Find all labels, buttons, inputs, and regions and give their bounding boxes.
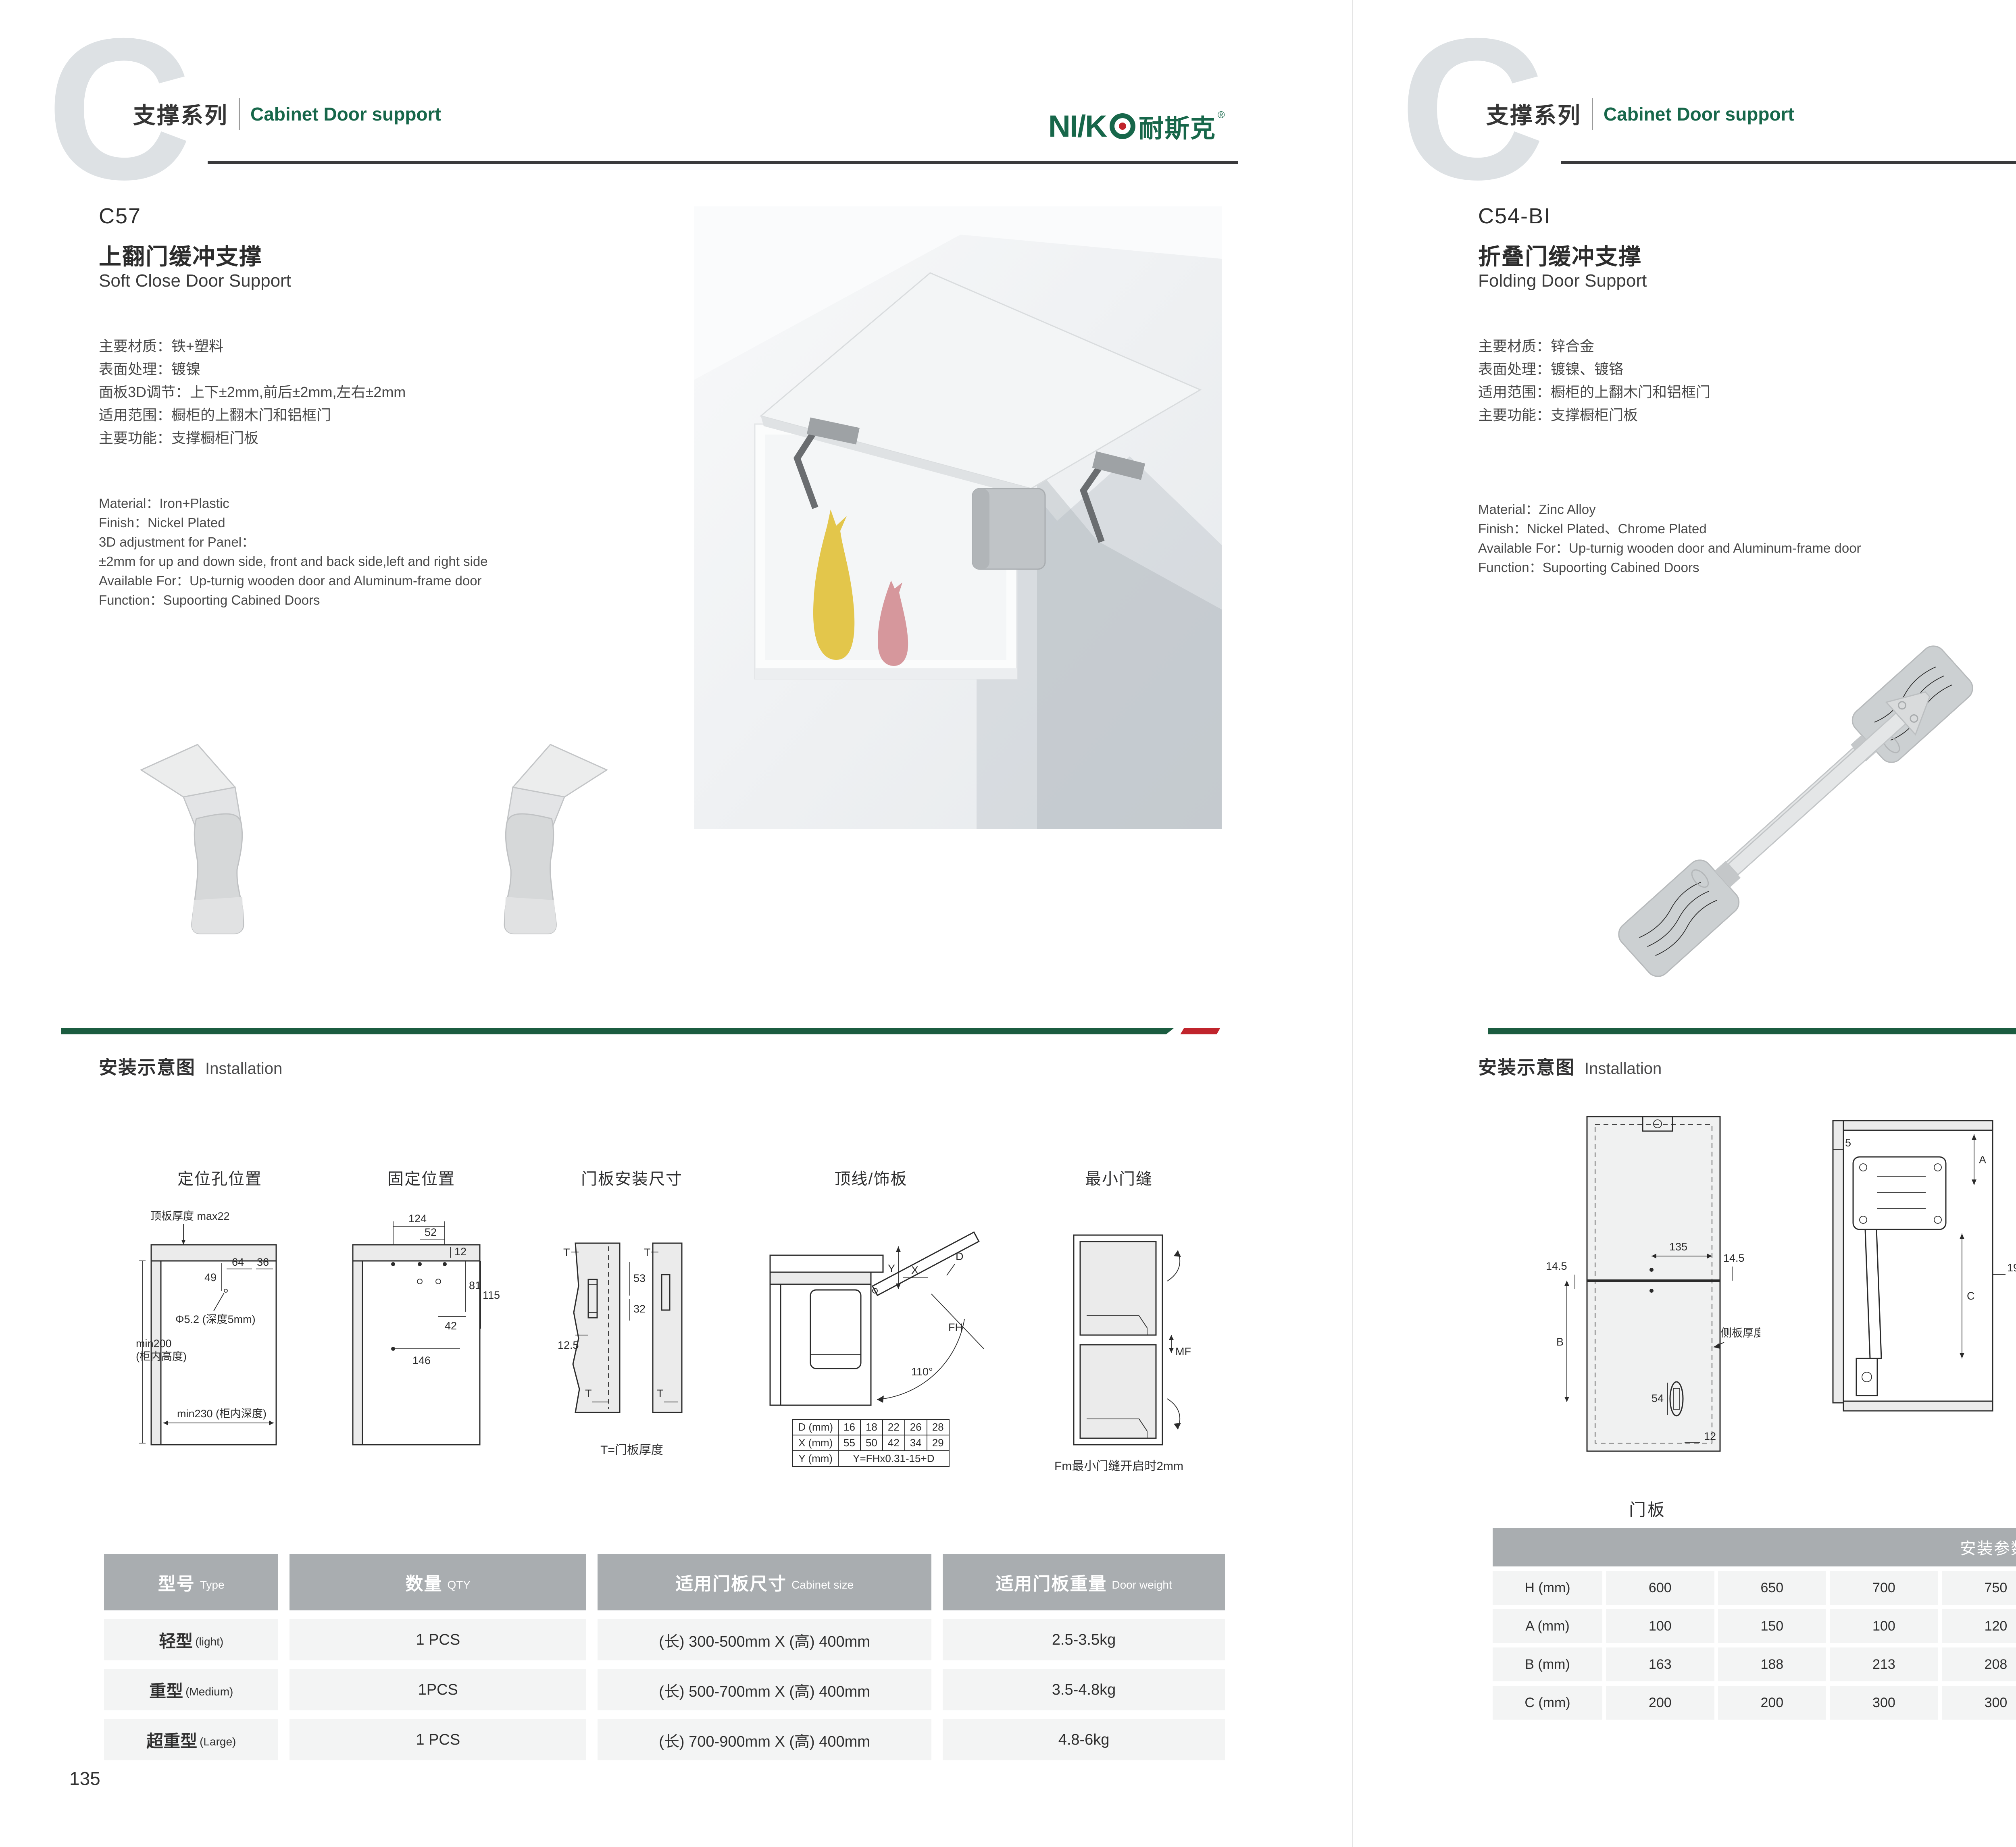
product-title-en: Folding Door Support — [1478, 271, 1647, 291]
svg-text:D: D — [956, 1250, 964, 1263]
series-title-cn: 支撑系列 — [1486, 98, 1581, 130]
diagram-crown-molding: 顶线/饰板 110° Y X D — [738, 1166, 1004, 1467]
svg-text:81: 81 — [469, 1279, 481, 1292]
series-title-en: Cabinet Door support — [250, 103, 441, 125]
header-series: 支撑系列 Cabinet Door support — [133, 98, 441, 130]
svg-text:B: B — [1556, 1336, 1564, 1348]
logo-dot-icon — [1119, 123, 1126, 130]
page-number: 135 — [69, 1768, 100, 1789]
svg-text:T: T — [657, 1387, 664, 1400]
product-specs-cn: 主要材质：锌合金 表面处理：镀镍、镀铬 适用范围：橱柜的上翻木门和铝框门 主要功… — [1478, 335, 1710, 426]
header-door-weight: 适用门板重量Door weight — [943, 1554, 1225, 1610]
spec-line: 表面处理：镀镍、镀铬 — [1478, 358, 1710, 381]
installation-heading-en: Installation — [205, 1060, 282, 1078]
section-bar-green — [61, 1028, 1174, 1034]
header-qty: 数量QTY — [289, 1554, 586, 1610]
svg-text:5: 5 — [1845, 1137, 1851, 1149]
diagram-caption: 门板 — [1629, 1496, 1666, 1521]
svg-text:12.5: 12.5 — [558, 1339, 579, 1351]
svg-text:19: 19 — [2007, 1262, 2016, 1274]
spec-line: Available For：Up-turnig wooden door and … — [99, 571, 488, 591]
spec-line: 主要功能：支撑橱柜门板 — [99, 426, 406, 449]
svg-text:124: 124 — [408, 1213, 427, 1225]
svg-text:Y: Y — [888, 1263, 895, 1275]
svg-text:36: 36 — [257, 1256, 269, 1268]
spec-line: 3D adjustment for Panel： — [99, 532, 488, 552]
diagram-fixing-position: 固定位置 124 52 12 81 115 42 — [339, 1166, 504, 1457]
series-title-en: Cabinet Door support — [1604, 103, 1794, 125]
spec-line: Finish：Nickel Plated、Chrome Plated — [1478, 519, 1861, 539]
cabinet-shelf — [755, 668, 1017, 679]
installation-heading-cn: 安装示意图 — [99, 1053, 196, 1079]
svg-text:MF: MF — [1175, 1346, 1191, 1358]
spec-line: 表面处理：镀镍 — [99, 358, 406, 381]
catalog-spread: C 支撑系列 Cabinet Door support NI/K 耐斯克 ® C… — [0, 0, 2016, 1847]
spec-table: 型号Type 数量QTY 适用门板尺寸Cabinet size 适用门板重量Do… — [104, 1554, 1225, 1760]
diagram-title: 定位孔位置 — [177, 1166, 262, 1189]
installation-heading-en: Installation — [1585, 1060, 1662, 1078]
logo-latin: NI/K — [1048, 109, 1106, 144]
svg-text:FH: FH — [948, 1321, 963, 1333]
diagram-door-mounting-size: 门板安装尺寸 T 53 32 12.5 T T T — [545, 1166, 719, 1458]
product-code: C57 — [99, 204, 141, 229]
reference-row-H: H (mm) 600 650 700 750 800 850 900 950 1… — [1493, 1571, 2016, 1605]
folding-support-unit-b — [1614, 670, 1949, 981]
spec-line: 面板3D调节：上下±2mm,前后±2mm,左右±2mm — [99, 381, 406, 404]
diagram-title: 顶线/饰板 — [834, 1166, 907, 1189]
spec-line: Function：Supoorting Cabined Doors — [99, 591, 488, 610]
svg-text:T: T — [563, 1246, 570, 1258]
crown-dimension-table: D (mm)1618222628 X (mm)5550423429 Y (mm)… — [792, 1419, 949, 1467]
spec-line: Material：Zinc Alloy — [1478, 500, 1861, 519]
header-rule — [1561, 161, 2016, 164]
svg-text:T: T — [585, 1387, 592, 1400]
diagram-caption: T=门板厚度 — [600, 1440, 663, 1458]
svg-text:135: 135 — [1669, 1241, 1687, 1253]
diagram-cabinet-section-a: 5 A C 19 — [1805, 1100, 2016, 1463]
diagram-door-panel: 135 14.5 14.5 B 54 12 侧板厚度 门板 — [1535, 1100, 1760, 1521]
svg-text:32: 32 — [633, 1303, 646, 1315]
svg-text:64: 64 — [232, 1256, 244, 1268]
svg-text:12: 12 — [1704, 1430, 1716, 1442]
page-left: C 支撑系列 Cabinet Door support NI/K 耐斯克 ® C… — [0, 0, 1352, 1847]
diagram-title: 门板安装尺寸 — [581, 1166, 683, 1189]
svg-text:42: 42 — [445, 1320, 457, 1332]
diagram-min-door-gap: 最小门缝 MF Fm最小门缝开启时2mm — [1044, 1166, 1193, 1474]
spec-line: Function：Supoorting Cabined Doors — [1478, 558, 1861, 577]
svg-text:Φ5.2 (深度5mm): Φ5.2 (深度5mm) — [175, 1313, 256, 1325]
svg-text:(柜内高度): (柜内高度) — [136, 1350, 187, 1362]
support-unit-left — [141, 745, 244, 934]
svg-text:14.5: 14.5 — [1546, 1260, 1567, 1272]
installation-heading-cn: 安装示意图 — [1478, 1053, 1575, 1079]
table-row: 超重型(Large) 1 PCS (长) 700-900mm X (高) 400… — [104, 1719, 1225, 1760]
installation-heading: 安装示意图 Installation — [1478, 1053, 1662, 1079]
spec-line: Finish：Nickel Plated — [99, 513, 488, 532]
spec-line: 适用范围：橱柜的上翻木门和铝框门 — [99, 404, 406, 426]
support-unit-right — [504, 745, 607, 934]
svg-text:T: T — [644, 1246, 651, 1258]
product-title-en: Soft Close Door Support — [99, 271, 291, 291]
reference-row-C: C (mm) 200 200 300 300 300 300 350 350 4… — [1493, 1686, 2016, 1720]
svg-text:顶板厚度 max22: 顶板厚度 max22 — [150, 1210, 230, 1222]
diagram-positioning-holes: 定位孔位置 顶板厚度 max22 49 64 36 Φ5.2 (深度5mm) m… — [133, 1166, 306, 1457]
svg-text:A: A — [1979, 1154, 1986, 1166]
spec-line: Available For：Up-turnig wooden door and … — [1478, 539, 1861, 558]
spec-line: 主要材质：铁+塑料 — [99, 335, 406, 358]
svg-text:X: X — [911, 1264, 918, 1276]
svg-text:49: 49 — [204, 1271, 217, 1283]
product-photo-hardware — [135, 736, 613, 939]
diagram-title: 最小门缝 — [1085, 1166, 1153, 1189]
logo-o-icon — [1110, 113, 1135, 139]
spec-line: 主要功能：支撑橱柜门板 — [1478, 404, 1710, 426]
spec-line: Material：Iron+Plastic — [99, 494, 488, 513]
svg-text:53: 53 — [633, 1272, 646, 1284]
svg-text:54: 54 — [1652, 1392, 1664, 1404]
table-row: 轻型(light) 1 PCS (长) 300-500mm X (高) 400m… — [104, 1619, 1225, 1660]
svg-text:12: 12 — [454, 1246, 467, 1258]
header-divider — [1592, 98, 1593, 130]
spec-line: 主要材质：锌合金 — [1478, 335, 1710, 358]
header-type: 型号Type — [104, 1554, 278, 1610]
brand-logo: NI/K 耐斯克 ® — [1048, 108, 1225, 144]
product-specs-en: Material：Zinc Alloy Finish：Nickel Plated… — [1478, 500, 1861, 577]
header-rule — [208, 161, 1238, 164]
product-specs-en: Material：Iron+Plastic Finish：Nickel Plat… — [99, 494, 488, 610]
header-cabinet-size: 适用门板尺寸Cabinet size — [598, 1554, 931, 1610]
installation-heading: 安装示意图 Installation — [99, 1053, 282, 1079]
svg-text:C: C — [1967, 1290, 1975, 1302]
svg-text:115: 115 — [483, 1289, 500, 1301]
series-title-cn: 支撑系列 — [133, 98, 228, 130]
diagram-title: 固定位置 — [387, 1166, 455, 1189]
page-right: C 支撑系列 Cabinet Door support NI/K 耐斯克 ® C… — [1352, 0, 2016, 1847]
product-photo-hardware — [1563, 627, 2016, 998]
svg-text:14.5: 14.5 — [1723, 1252, 1745, 1264]
svg-text:52: 52 — [425, 1226, 437, 1238]
product-title-cn: 上翻门缓冲支撑 — [99, 239, 262, 271]
table-row: 重型(Medium) 1PCS (长) 500-700mm X (高) 400m… — [104, 1669, 1225, 1710]
product-title-cn: 折叠门缓冲支撑 — [1478, 239, 1642, 271]
reference-table-title: 安装参数 Reference Data — [1493, 1528, 2016, 1566]
damper-shade — [973, 489, 989, 569]
spec-line: ±2mm for up and down side, front and bac… — [99, 552, 488, 571]
header-divider — [239, 98, 240, 130]
svg-text:侧板厚度: 侧板厚度 — [1721, 1327, 1760, 1339]
svg-text:min230 (柜内深度): min230 (柜内深度) — [177, 1408, 267, 1420]
product-code: C54-BI — [1478, 204, 1551, 229]
product-photo-cabinet — [694, 206, 1222, 829]
header-series: 支撑系列 Cabinet Door support — [1486, 98, 1794, 130]
reference-row-B: B (mm) 163 188 213 208 263 288 263 288 3… — [1493, 1647, 2016, 1681]
diagram-caption: Fm最小门缝开启时2mm — [1054, 1456, 1183, 1474]
svg-text:146: 146 — [412, 1354, 431, 1367]
logo-registered-mark: ® — [1218, 110, 1225, 121]
svg-text:110°: 110° — [911, 1366, 933, 1378]
logo-cn: 耐斯克 — [1139, 108, 1216, 144]
section-bar-red — [1180, 1028, 1220, 1034]
product-specs-cn: 主要材质：铁+塑料 表面处理：镀镍 面板3D调节：上下±2mm,前后±2mm,左… — [99, 335, 406, 449]
svg-text:min200: min200 — [136, 1337, 172, 1350]
spec-table-header: 型号Type 数量QTY 适用门板尺寸Cabinet size 适用门板重量Do… — [104, 1554, 1225, 1610]
reference-table: 安装参数 Reference Data H (mm) 600 650 700 7… — [1493, 1528, 2016, 1720]
reference-row-A: A (mm) 100 150 100 120 200 250 200 250 2… — [1493, 1609, 2016, 1643]
spec-line: 适用范围：橱柜的上翻木门和铝框门 — [1478, 381, 1710, 404]
section-bar-green — [1488, 1028, 2016, 1034]
